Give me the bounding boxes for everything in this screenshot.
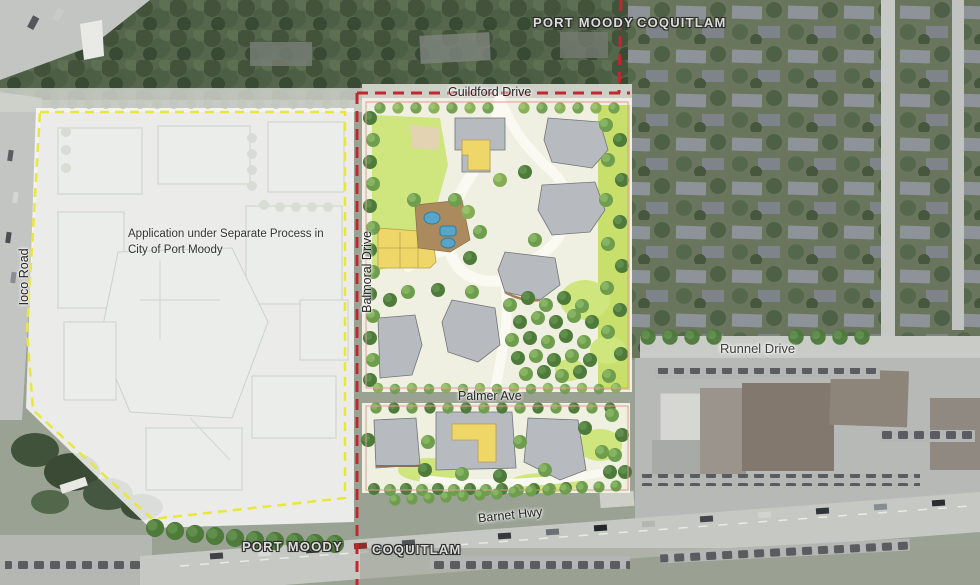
label-guildford-drive: Guildford Drive [448,86,531,100]
label-ioco-road: Ioco Road [18,245,32,309]
label-coquitlam-top: COQUITLAM [637,16,727,30]
label-balmoral-drive: Balmoral Drive [361,222,375,322]
label-port-moody-top: PORT MOODY [533,16,634,30]
label-palmer-ave: Palmer Ave [458,390,522,404]
label-runnel-drive: Runnel Drive [720,342,795,356]
label-port-moody-bottom: PORT MOODY [242,540,343,554]
label-coquitlam-bottom: COQUITLAM [372,543,462,557]
label-application-note: Application under Separate Process in Ci… [128,227,324,258]
site-context-map: PORT MOODY COQUITLAM Guildford Drive Bal… [0,0,980,585]
